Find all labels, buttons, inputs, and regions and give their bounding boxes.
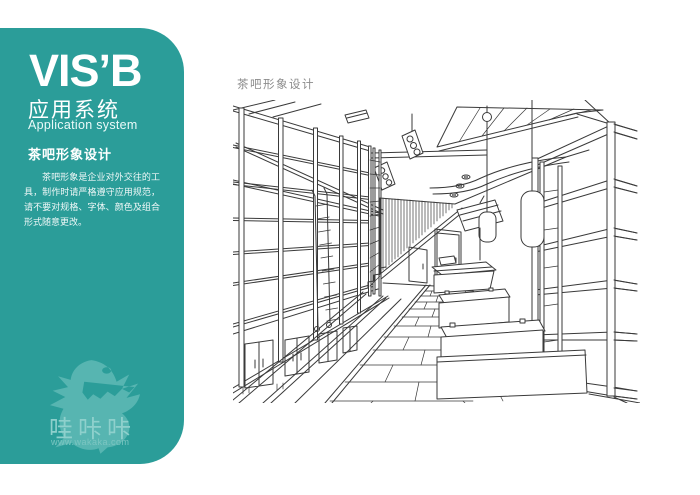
sidebar-panel: VIS’B 应用系统 Application system 茶吧形象设计 茶吧形… (0, 28, 184, 464)
mascot-url: www.wakaka.com (51, 437, 130, 447)
sidebar-section-title: 茶吧形象设计 (28, 144, 112, 163)
sidebar-description: 茶吧形象是企业对外交往的工具，制作时请严格遵守应用规范，请不要对规格、字体、颜色… (24, 170, 160, 230)
page-title: 茶吧形象设计 (237, 76, 315, 92)
tea-bar-interior-sketch (233, 100, 640, 403)
system-title-en: Application system (28, 118, 138, 132)
sketch-left-shelving (233, 106, 389, 394)
brand-logo-text: VIS’B (29, 48, 142, 93)
sketch-ceiling (233, 100, 611, 197)
sketch-counter-tables (432, 228, 587, 399)
